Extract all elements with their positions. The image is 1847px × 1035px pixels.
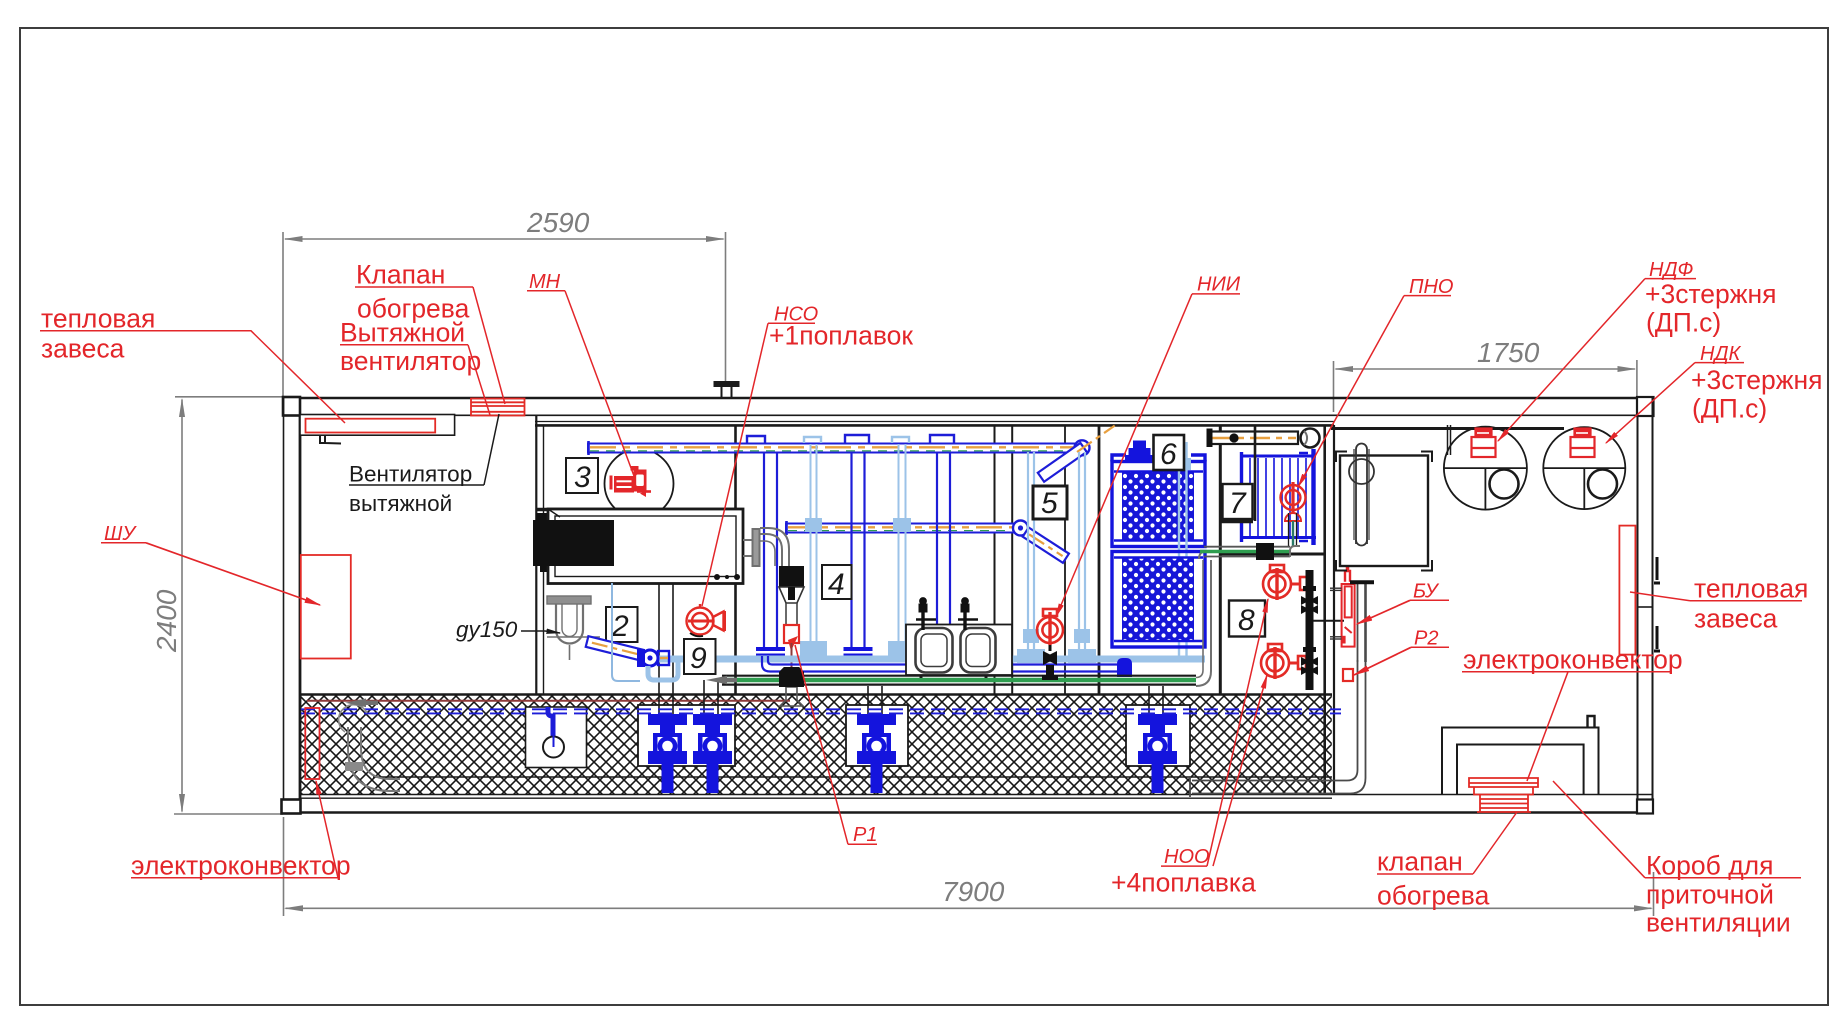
svg-text:ШУ: ШУ: [104, 523, 137, 545]
svg-text:+4поплавка: +4поплавка: [1111, 868, 1256, 898]
svg-text:НДК: НДК: [1700, 343, 1742, 365]
svg-text:ПНО: ПНО: [1409, 276, 1454, 298]
svg-text:Р2: Р2: [1414, 628, 1438, 650]
svg-text:электроконвектор: электроконвектор: [1463, 645, 1683, 675]
svg-text:+3стержня: +3стержня: [1645, 279, 1777, 309]
svg-text:вытяжной: вытяжной: [349, 491, 452, 516]
svg-text:7900: 7900: [942, 876, 1005, 907]
svg-text:клапан: клапан: [1377, 847, 1463, 877]
svg-text:1750: 1750: [1477, 337, 1540, 368]
svg-text:Вытяжной: Вытяжной: [340, 318, 465, 348]
svg-text:6: 6: [1160, 438, 1177, 471]
svg-text:9: 9: [690, 642, 707, 675]
svg-text:Вентилятор: Вентилятор: [349, 462, 472, 487]
svg-text:gy150: gy150: [456, 617, 518, 642]
svg-text:+1поплавок: +1поплавок: [769, 321, 913, 351]
svg-text:БУ: БУ: [1413, 581, 1440, 603]
svg-text:завеса: завеса: [41, 334, 125, 364]
svg-text:МН: МН: [529, 271, 561, 293]
svg-text:7: 7: [1229, 487, 1247, 520]
svg-text:вентиляции: вентиляции: [1646, 908, 1791, 938]
svg-text:НИИ: НИИ: [1197, 274, 1241, 296]
svg-text:завеса: завеса: [1694, 604, 1778, 634]
svg-text:3: 3: [574, 461, 591, 494]
svg-text:НДФ: НДФ: [1649, 259, 1694, 281]
svg-text:Р1: Р1: [853, 824, 877, 846]
svg-text:5: 5: [1041, 487, 1058, 520]
svg-text:2: 2: [611, 610, 629, 643]
svg-text:обогрева: обогрева: [1377, 881, 1490, 911]
svg-text:2400: 2400: [151, 589, 182, 653]
svg-text:(ДП.с): (ДП.с): [1646, 308, 1721, 338]
svg-text:(ДП.с): (ДП.с): [1692, 394, 1767, 424]
svg-text:8: 8: [1238, 604, 1255, 637]
svg-text:2590: 2590: [526, 207, 590, 238]
svg-text:+3стержня: +3стержня: [1691, 365, 1823, 395]
svg-text:вентилятор: вентилятор: [340, 346, 481, 376]
svg-text:4: 4: [828, 568, 845, 601]
svg-text:НОО: НОО: [1164, 846, 1210, 868]
svg-text:приточной: приточной: [1646, 880, 1774, 910]
svg-text:тепловая: тепловая: [41, 304, 155, 334]
svg-text:тепловая: тепловая: [1694, 574, 1808, 604]
svg-text:Короб для: Короб для: [1646, 851, 1773, 881]
svg-text:электроконвектор: электроконвектор: [131, 851, 351, 881]
svg-text:Клапан: Клапан: [356, 260, 445, 290]
